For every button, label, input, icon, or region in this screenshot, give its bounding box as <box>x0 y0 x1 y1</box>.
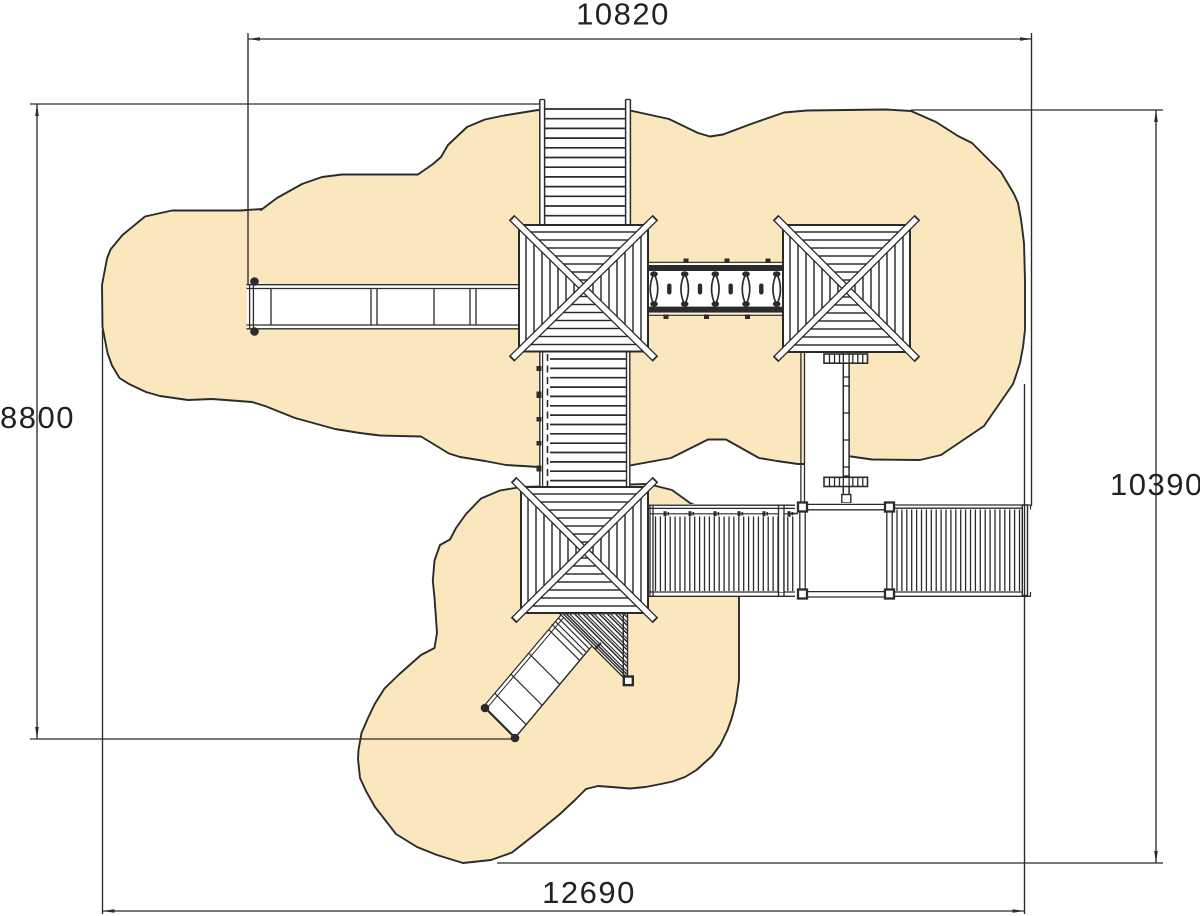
svg-text:10820: 10820 <box>576 0 670 32</box>
svg-text:12690: 12690 <box>542 875 636 910</box>
svg-text:8800: 8800 <box>0 400 75 435</box>
svg-text:10390: 10390 <box>1110 467 1200 502</box>
